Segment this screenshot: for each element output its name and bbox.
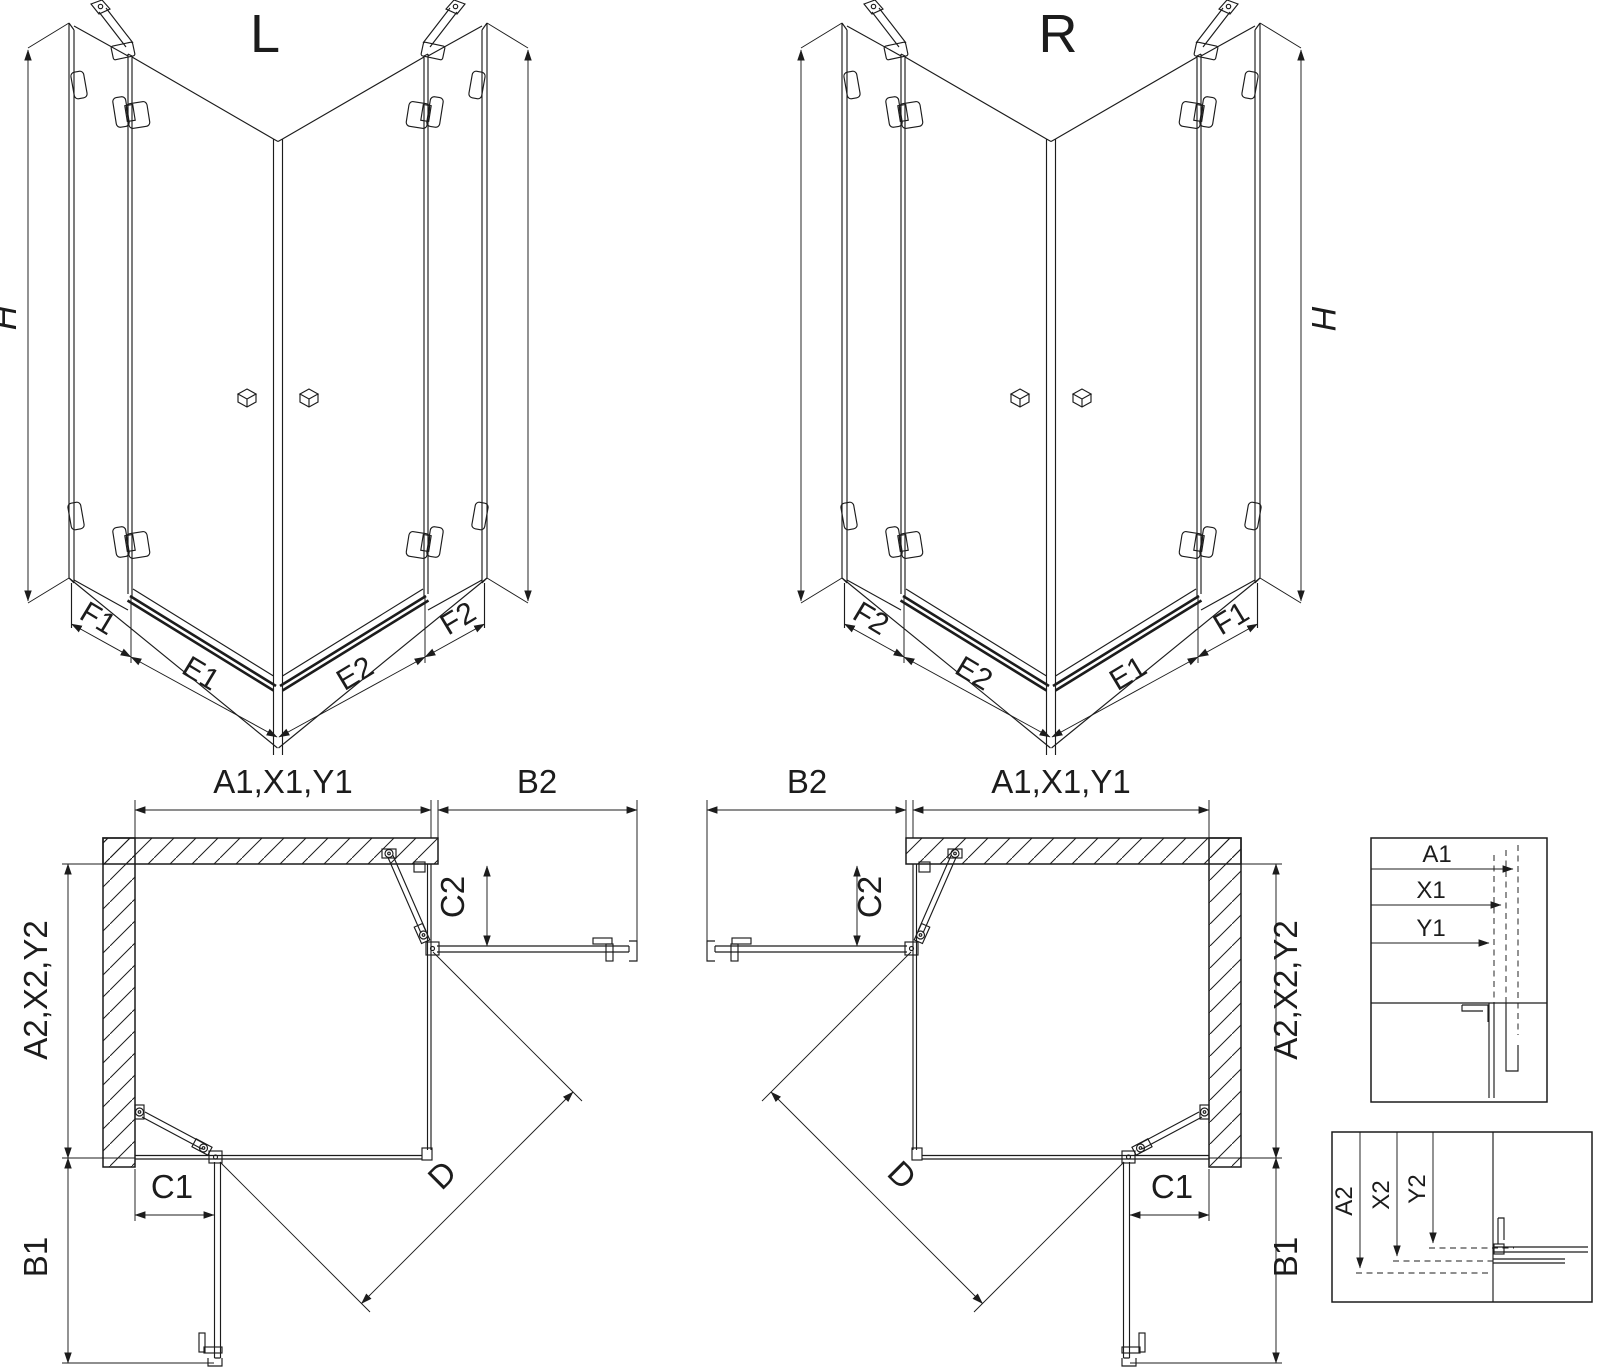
plan-view-left: A1,X1,Y1 B2 C2 A2,X2,Y2 C1 B1 D — [17, 763, 637, 1366]
iso-left-title: L — [250, 4, 280, 64]
plan-left-label-width-top: A1,X1,Y1 — [213, 763, 352, 800]
detail-label-x2: X2 — [1368, 1180, 1395, 1209]
plan-left-label-depth: A2,X2,Y2 — [17, 920, 54, 1059]
plan-left-label-b2: B2 — [517, 763, 557, 800]
detail-box-vertical: A2 X2 Y2 — [1331, 1132, 1592, 1302]
plan-left-wall-top — [103, 838, 438, 864]
plan-left-label-c1: C1 — [151, 1168, 193, 1205]
plan-right-label-depth: A2,X2,Y2 — [1267, 920, 1304, 1059]
detail-label-y2: Y2 — [1404, 1174, 1431, 1203]
iso-view-right: R H F2 E2 E1 F1 — [801, 0, 1342, 755]
detail-box-horizontal: A1 X1 Y1 — [1371, 838, 1547, 1102]
plan-right-geometry — [707, 800, 1282, 1366]
plan-view-right: B2 A1,X1,Y1 C2 A2,X2,Y2 C1 B1 D — [707, 763, 1304, 1366]
plan-right-label-width-top: A1,X1,Y1 — [991, 763, 1130, 800]
detail-label-a1: A1 — [1422, 841, 1451, 868]
plan-right-label-c1: C1 — [1151, 1168, 1193, 1205]
detail-horizontal-frame — [1371, 838, 1547, 1102]
detail-label-x1: X1 — [1416, 877, 1445, 904]
iso-view-left: L H F1 E1 E2 F2 — [0, 0, 528, 755]
detail-label-y1: Y1 — [1416, 915, 1445, 942]
plan-right-label-b1: B1 — [1267, 1237, 1304, 1277]
detail-vertical-frame — [1332, 1132, 1592, 1302]
technical-drawing-page: L H F1 E1 E2 F2 R H F2 E2 E1 F1 A1,X1,Y1… — [0, 0, 1600, 1371]
iso-left-geometry — [28, 0, 528, 755]
technical-drawing: L H F1 E1 E2 F2 R H F2 E2 E1 F1 A1,X1,Y1… — [0, 0, 1600, 1371]
plan-left-label-c2: C2 — [434, 876, 471, 918]
detail-label-a2: A2 — [1331, 1186, 1358, 1215]
plan-left-geometry — [62, 800, 637, 1366]
plan-right-wall-side — [1209, 838, 1241, 1167]
plan-left-wall-side — [103, 838, 135, 1167]
plan-right-wall-top — [906, 838, 1241, 864]
plan-right-label-b2: B2 — [787, 763, 827, 800]
iso-right-title: R — [1039, 4, 1078, 64]
plan-right-label-c2: C2 — [851, 876, 888, 918]
iso-left-height-label: H — [0, 305, 24, 330]
plan-left-label-b1: B1 — [17, 1237, 54, 1277]
iso-right-height-label: H — [1304, 306, 1342, 331]
iso-right-geometry — [801, 0, 1301, 755]
